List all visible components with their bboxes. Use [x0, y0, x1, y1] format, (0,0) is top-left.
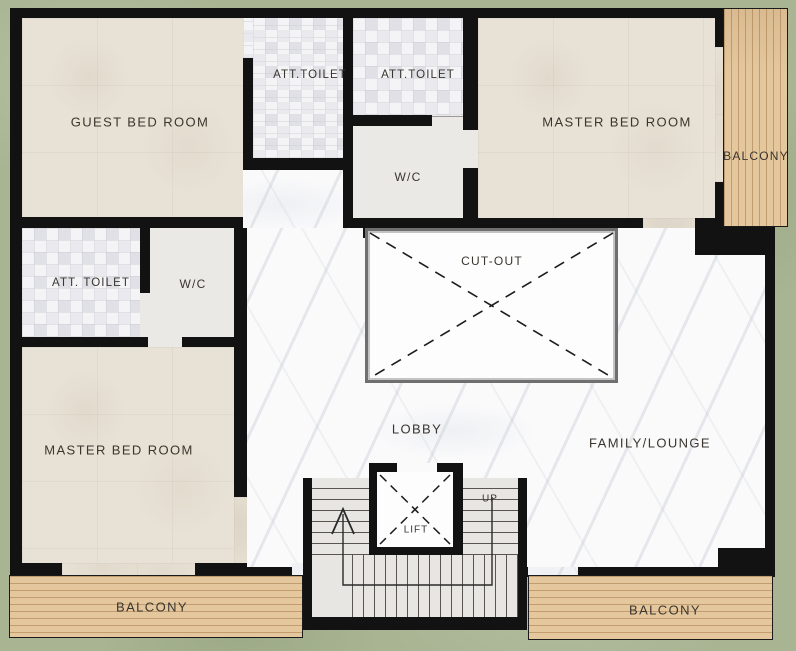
master-bedroom-bottom-label: MASTER BED ROOM: [44, 443, 194, 458]
att-toilet-top-left-label: ATT.TOILET: [273, 69, 347, 81]
stair-direction-arrow: [300, 440, 530, 640]
balcony-right-label: BALCONY: [723, 149, 789, 163]
cutout-label: CUT-OUT: [461, 254, 523, 268]
balcony-bottom-right-label: BALCONY: [629, 603, 701, 618]
lobby-label: LOBBY: [392, 422, 442, 437]
guest-toilet-door-opening: [243, 18, 253, 58]
master-top-door-opening: [643, 218, 695, 228]
cutout-void: [365, 228, 618, 383]
att-toilet-top-right-floor: [353, 18, 463, 115]
master-bottom-door-opening: [234, 497, 247, 563]
master-bedroom-top-label: MASTER BED ROOM: [542, 115, 692, 130]
balcony-right: [723, 8, 788, 227]
balcony-bottom-left-label: BALCONY: [116, 600, 188, 615]
wc-top-label: W/C: [395, 170, 422, 184]
wall-chunk-bottom-right: [718, 548, 775, 577]
wc-mid-left-label: W/C: [180, 277, 207, 291]
door-threshold-line: [432, 116, 463, 117]
stairs-up-label: UP: [482, 494, 498, 505]
att-toilet-mid-left-label: ATT. TOILET: [52, 277, 130, 289]
wall-chunk-top-right: [695, 228, 775, 255]
wc-bedroom-door-opening: [463, 130, 478, 168]
wc-left-door-opening: [148, 337, 182, 347]
att-toilet-top-left-floor: [253, 18, 343, 158]
toilet-wc-left-opening: [140, 293, 150, 337]
att-toilet-top-right-label: ATT.TOILET: [381, 69, 455, 81]
family-lounge-label: FAMILY/LOUNGE: [589, 436, 711, 451]
balcony-right-opening: [715, 47, 723, 182]
lift-label: LIFT: [404, 525, 429, 536]
guest-bedroom-label: GUEST BED ROOM: [71, 115, 210, 130]
entry-passage-floor: [243, 170, 343, 228]
floor-plan: GUEST BED ROOM ATT.TOILET ATT.TOILET MAS…: [0, 0, 796, 651]
